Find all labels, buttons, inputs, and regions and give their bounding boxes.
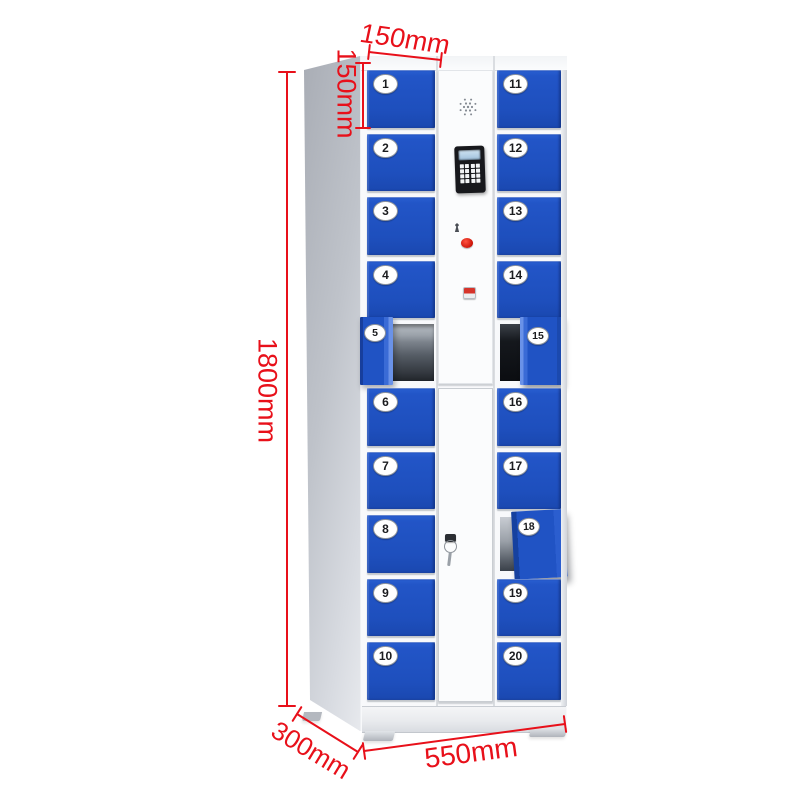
locker-number-badge: 14 — [503, 265, 528, 285]
locker-number: 17 — [509, 459, 522, 473]
locker-number: 14 — [509, 268, 522, 282]
locker-18-door: 18 — [497, 515, 561, 573]
locker-number: 10 — [379, 649, 392, 663]
open-locker-door-panel: 15 — [520, 317, 562, 385]
cabinet-foot-front-right — [529, 728, 567, 737]
locker-number: 6 — [382, 395, 389, 409]
cabinet-side-panel — [304, 56, 360, 731]
control-column — [438, 56, 493, 731]
locker-number-badge: 2 — [373, 138, 398, 158]
locker-7-door: 7 — [367, 452, 435, 510]
keypad-key — [471, 174, 475, 178]
locker-column-left: 12345678910 — [367, 56, 435, 731]
locker-number: 9 — [382, 586, 389, 600]
cabinet-foot-back-left — [302, 712, 322, 721]
locker-number-badge: 8 — [373, 519, 398, 539]
locker-number: 11 — [509, 77, 522, 91]
keypad-key — [476, 174, 480, 178]
keypad-key — [471, 164, 475, 168]
locker-number: 20 — [509, 649, 522, 663]
locker-number: 4 — [382, 268, 389, 282]
locker-13-door: 13 — [497, 197, 561, 255]
locker-number-badge: 3 — [373, 201, 398, 221]
locker-number-badge: 5 — [364, 324, 386, 342]
locker-number: 13 — [509, 204, 522, 218]
locker-1-door: 1 — [367, 70, 435, 128]
keypad-key — [466, 174, 470, 178]
dim-door-height-label: 150mm — [333, 49, 360, 135]
locker-number: 12 — [509, 141, 522, 155]
speaker-grille-icon — [455, 94, 481, 120]
locker-number: 5 — [372, 327, 378, 339]
locker-5-door: 5 — [367, 324, 435, 382]
locker-number-badge: 10 — [373, 646, 398, 666]
keypad-key — [476, 179, 480, 183]
locker-number: 15 — [532, 330, 544, 342]
locker-column-right: 11121314151617181920 — [497, 56, 561, 731]
locker-number-badge: 12 — [503, 138, 528, 158]
locker-10-door: 10 — [367, 642, 435, 700]
keypad-key — [460, 174, 464, 178]
locker-number-badge: 15 — [527, 327, 549, 345]
locker-14-door: 14 — [497, 261, 561, 319]
keypad-key — [476, 164, 480, 168]
open-locker-interior — [500, 324, 522, 381]
keypad-key — [471, 169, 475, 173]
cabinet-foot-front-left — [363, 731, 395, 741]
keypad-key — [460, 164, 464, 168]
open-locker-door-panel: 5 — [360, 317, 393, 385]
locker-number-badge: 19 — [503, 583, 528, 603]
locker-16-door: 16 — [497, 388, 561, 446]
locker-number-badge: 4 — [373, 265, 398, 285]
locker-number-badge: 18 — [517, 517, 540, 536]
locker-number-badge: 11 — [503, 74, 528, 94]
locker-number-badge: 9 — [373, 583, 398, 603]
keypad-key — [476, 169, 480, 173]
locker-number-badge: 16 — [503, 392, 528, 412]
locker-number-badge: 17 — [503, 456, 528, 476]
locker-6-door: 6 — [367, 388, 435, 446]
locker-number: 7 — [382, 459, 389, 473]
locker-4-door: 4 — [367, 261, 435, 319]
keypad-key — [460, 169, 464, 173]
locker-8-door: 8 — [367, 515, 435, 573]
locker-number: 3 — [382, 204, 389, 218]
open-locker-door-panel: 18 — [511, 509, 567, 580]
locker-number-badge: 20 — [503, 646, 528, 666]
locker-19-door: 19 — [497, 579, 561, 637]
locker-number: 8 — [382, 522, 389, 536]
locker-11-door: 11 — [497, 70, 561, 128]
keypad — [454, 145, 486, 193]
locker-15-door: 15 — [497, 324, 561, 382]
cabinet-right-edge — [561, 70, 567, 706]
locker-20-door: 20 — [497, 642, 561, 700]
dim-width-label: 550mm — [411, 731, 532, 774]
keypad-key — [460, 179, 464, 183]
locker-3-door: 3 — [367, 197, 435, 255]
power-button-icon — [463, 287, 476, 299]
locker-2-door: 2 — [367, 134, 435, 192]
locker-12-door: 12 — [497, 134, 561, 192]
locker-number: 1 — [382, 77, 389, 91]
dim-height-label: 1800mm — [254, 334, 281, 448]
product-image-canvas: 12345678910 — [0, 0, 800, 800]
locker-number-badge: 13 — [503, 201, 528, 221]
locker-number: 19 — [509, 586, 522, 600]
keypad-key — [466, 179, 470, 183]
locker-number: 18 — [523, 521, 535, 534]
indicator-light — [461, 238, 473, 248]
locker-number-badge: 6 — [373, 392, 398, 412]
keypad-screen — [458, 150, 480, 161]
locker-17-door: 17 — [497, 452, 561, 510]
front-face: 12345678910 — [360, 56, 567, 731]
locker-number-badge: 1 — [373, 74, 398, 94]
locker-number-badge: 7 — [373, 456, 398, 476]
keypad-key — [465, 164, 469, 168]
keypad-keys — [460, 164, 481, 183]
dim-top-width-label: 150mm — [358, 20, 453, 59]
keypad-key — [465, 169, 469, 173]
locker-number: 16 — [509, 395, 522, 409]
locker-number: 2 — [382, 141, 389, 155]
keypad-key — [471, 179, 475, 183]
locker-9-door: 9 — [367, 579, 435, 637]
